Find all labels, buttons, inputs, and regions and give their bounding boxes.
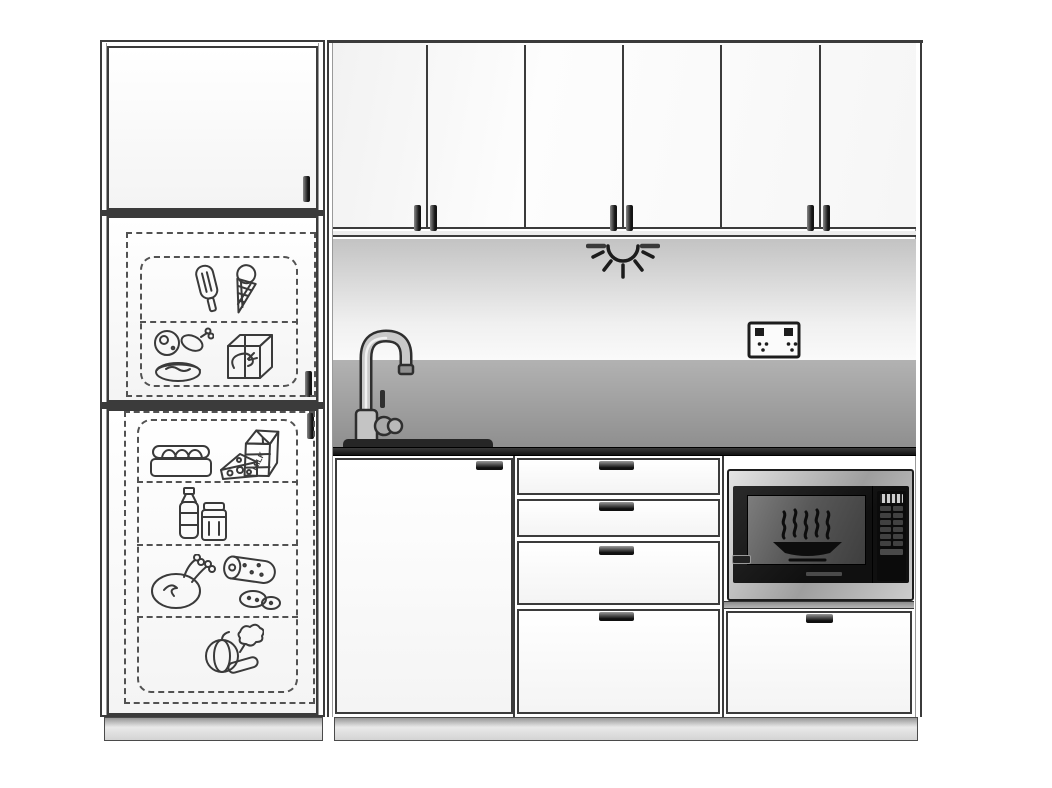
wall-door-divider-3 <box>622 45 624 229</box>
wall-cabinet-handle <box>414 205 421 231</box>
salami-icon <box>220 554 282 610</box>
microwave-brand-mark <box>806 572 842 576</box>
vegetables-icon <box>200 618 264 678</box>
tower-drawer-handle <box>806 614 833 623</box>
wall-cabinet-run <box>333 43 916 229</box>
drawer-2-handle <box>599 502 634 511</box>
run-right-panel <box>920 40 922 717</box>
gooseneck-tap-icon <box>350 324 428 448</box>
microwave-door-seam <box>872 486 873 583</box>
egg-tray-icon <box>150 443 212 481</box>
base-divider-1 <box>513 456 515 717</box>
run-left-panel <box>327 40 329 717</box>
drawer-1-handle <box>599 461 634 470</box>
wall-cabinet-handle <box>807 205 814 231</box>
wall-door-divider-4 <box>720 45 722 229</box>
microwave-control-panel <box>877 491 906 581</box>
microwave-logo-chip <box>732 555 751 564</box>
drawer-4 <box>517 609 720 714</box>
microwave-buttons <box>880 506 903 546</box>
milk-carton-icon: MILK <box>236 423 284 481</box>
top-cabinet-door <box>107 46 318 210</box>
microwave-window <box>747 495 866 565</box>
microwave-display <box>880 494 903 503</box>
tall-unit-rail-2 <box>102 402 323 409</box>
wall-door-divider-1 <box>426 45 428 229</box>
water-bottle-icon <box>176 486 202 540</box>
tall-unit-right-panel-line <box>318 43 319 715</box>
fridge-shelf-divider-2 <box>137 544 298 546</box>
power-outlet-icon <box>747 321 801 361</box>
wall-door-divider-2 <box>524 45 526 229</box>
frozen-seafood-cube-icon <box>220 330 278 384</box>
freezer-shelf-divider <box>140 321 298 323</box>
roast-chicken-icon <box>148 554 216 612</box>
ham-icon <box>150 327 214 385</box>
storage-jar-icon <box>200 500 228 542</box>
popsicle-and-ice-cream-icon <box>192 261 266 321</box>
drawer-3-handle <box>599 546 634 555</box>
kitchen-elevation-diagram: MILK <box>0 0 1052 788</box>
sink-cabinet-handle <box>476 461 503 470</box>
top-cabinet-handle <box>303 176 310 202</box>
steaming-bowl-icon <box>748 496 867 566</box>
drawer-4-handle <box>599 612 634 621</box>
microwave-open-button <box>880 549 903 555</box>
run-plinth <box>334 717 918 741</box>
tall-unit-plinth <box>104 717 323 741</box>
under-cabinet-light-icon <box>586 236 660 282</box>
wall-cabinet-handle <box>430 205 437 231</box>
wall-cabinet-handle <box>626 205 633 231</box>
wall-door-divider-5 <box>819 45 821 229</box>
wall-cabinet-handle <box>610 205 617 231</box>
sink-cabinet-door <box>335 458 513 714</box>
microwave-shelf-band <box>724 601 914 609</box>
wall-cabinet-handle <box>823 205 830 231</box>
countertop <box>333 447 916 456</box>
tower-drawer <box>726 611 912 714</box>
